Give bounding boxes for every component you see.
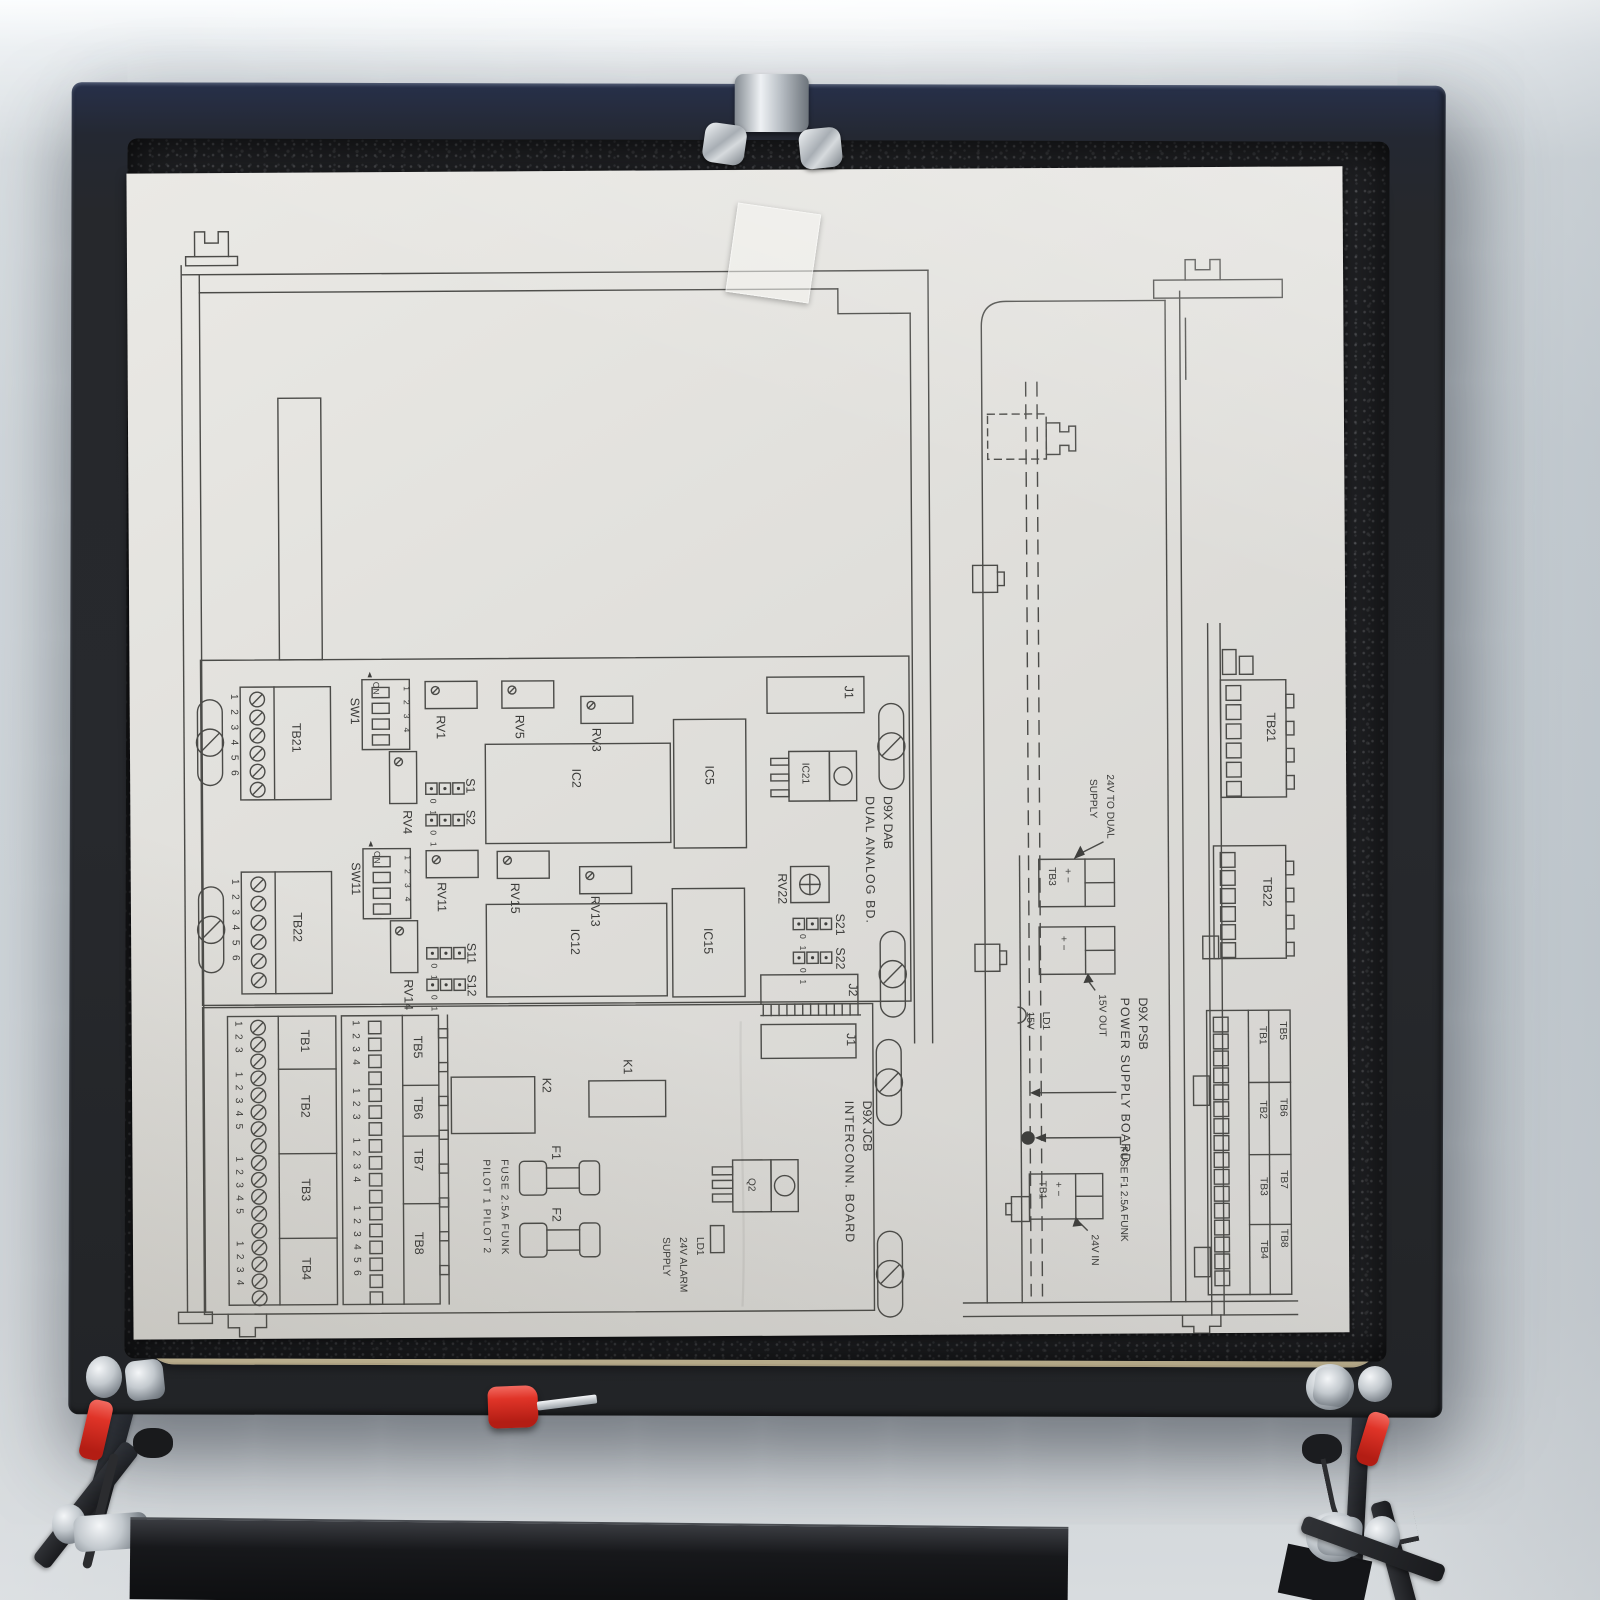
q2-label: Q2 — [745, 1178, 756, 1192]
ic21-package — [771, 751, 857, 801]
ic21-label: IC21 — [799, 763, 810, 785]
tb21-label: TB21 — [289, 723, 303, 753]
tb21-pin-numbers: 1 2 3 4 5 6 — [228, 694, 240, 779]
tb3-pin-numbers: 1 2 3 4 5 — [233, 1156, 244, 1216]
tb1-clip — [1006, 1197, 1030, 1222]
tb7-pin-numbers: 1 2 3 4 — [350, 1138, 361, 1185]
sw11-on-label: ON — [372, 851, 382, 864]
note-24v-dual-line1: 24V TO DUAL — [1104, 774, 1115, 839]
ld1-note-line2: 24V ALARM — [677, 1237, 688, 1292]
tb1-polarity: + − — [1052, 1182, 1063, 1197]
mounting-foot-left — [228, 1314, 266, 1337]
fuse-f2 — [520, 1223, 600, 1257]
rv5-label: RV5 — [513, 715, 527, 739]
tb3-psb-label: TB3 — [1046, 867, 1057, 886]
rv14-label: RV14 — [401, 979, 415, 1010]
tb22-pin-numbers: 1 2 3 4 5 6 — [229, 879, 241, 964]
note-24v-dual-line2: SUPPLY — [1087, 779, 1098, 819]
tb3-block: + − TB3 — [1039, 859, 1115, 907]
pilot-note: PILOT 1 PILOT 2 — [480, 1159, 492, 1254]
rv1-label: RV1 — [434, 715, 448, 739]
hinge-washer-left — [86, 1356, 122, 1398]
psb-col-tb1: TB1 — [1257, 1026, 1268, 1045]
psb-title-line2: POWER SUPPLY BOARD — [1118, 998, 1133, 1164]
s22-states: 0 1 — [798, 968, 808, 987]
enclosure-door: 1 2 3 4 5 6 TB21 ON 1 2 3 4 SW1 RV1 RV5 — [68, 82, 1445, 1418]
tb4-label: TB4 — [299, 1257, 313, 1280]
hinge-nut-right — [1312, 1366, 1353, 1409]
photo-scene: 1 2 3 4 5 6 TB21 ON 1 2 3 4 SW1 RV1 RV5 — [0, 0, 1600, 1600]
box-bottom-edge — [130, 1517, 1069, 1600]
dab-title-line1: D9X DAB — [881, 796, 895, 849]
tb2-label: TB2 — [298, 1095, 312, 1118]
j1-dab-label: J1 — [842, 686, 856, 699]
tb3-polarity: + − — [1062, 868, 1073, 883]
rv22-label: RV22 — [775, 873, 789, 904]
ld1-note-line3: SUPPLY — [660, 1237, 671, 1277]
tb1-label: TB1 — [298, 1030, 312, 1053]
psb-tb22-label: TB22 — [1260, 877, 1274, 907]
terminal-block-tb22: 1 2 3 4 5 6 TB22 — [229, 872, 332, 994]
jcb-title-line2: INTERCONN. BOARD — [842, 1101, 857, 1244]
psb-15v-label: 15V — [1024, 1012, 1035, 1030]
k2-label: K2 — [540, 1078, 554, 1093]
s11-label: S11 — [464, 943, 478, 964]
led-indicator — [1021, 1131, 1035, 1145]
bracket-low — [975, 944, 1007, 971]
j2-pin-comb — [761, 1004, 860, 1016]
note-15v-out: 15V OUT — [1096, 994, 1107, 1036]
psb-col-tb8: TB8 — [1278, 1229, 1289, 1248]
psb-col-tb7: TB7 — [1278, 1170, 1289, 1189]
latch-bolt-left — [701, 121, 748, 167]
tb1-pin-numbers: 1 2 3 — [232, 1021, 243, 1055]
dual-analog-board: 1 2 3 4 5 6 TB21 ON 1 2 3 4 SW1 RV1 RV5 — [196, 656, 911, 1021]
rv13-label: RV13 — [588, 896, 602, 927]
rv4-label: RV4 — [400, 810, 414, 834]
tb4-pin-numbers: 1 2 3 4 — [234, 1241, 245, 1288]
foam-interior: 1 2 3 4 5 6 TB21 ON 1 2 3 4 SW1 RV1 RV5 — [124, 138, 1389, 1361]
ic12-label: IC12 — [568, 929, 582, 955]
latch-roller — [735, 74, 809, 132]
bracket-mid — [973, 565, 1005, 592]
terminal-block-tb21: 1 2 3 4 5 6 TB21 — [228, 687, 331, 800]
note-24v-in: 24V IN — [1089, 1235, 1100, 1266]
din-clip-top — [1185, 259, 1220, 280]
tb6-pin-numbers: 1 2 3 — [350, 1088, 361, 1122]
rv3-label: RV3 — [589, 728, 603, 752]
s2-label: S2 — [463, 810, 477, 825]
tb3-label: TB3 — [299, 1178, 313, 1201]
psb-tb22-block: TB22 — [1202, 845, 1294, 958]
ld1-led — [710, 1226, 724, 1253]
psb-tb21-label: TB21 — [1264, 712, 1278, 742]
dip-switch-sw11: ON 1 2 3 4 SW11 — [349, 841, 413, 919]
tape-tab — [725, 203, 821, 304]
hinge-nut-left — [124, 1358, 166, 1402]
ic5-label: IC5 — [702, 765, 716, 784]
s12-states: 0 1 — [430, 995, 440, 1014]
square-pad-strip: 1 2 3 4 1 2 3 1 2 3 4 1 2 3 4 5 6 TB5 TB… — [341, 1015, 449, 1304]
tb7-label: TB7 — [411, 1148, 425, 1171]
sw1-on-label: ON — [371, 682, 381, 695]
rubber-bumper-left — [133, 1428, 173, 1458]
ic15-label: IC15 — [701, 928, 715, 954]
wire-ferrule-center — [487, 1385, 538, 1429]
s12-label: S12 — [464, 974, 478, 996]
j1-jcb-label: J1 — [844, 1033, 858, 1046]
tb8-pin-numbers: 1 2 3 4 5 6 — [351, 1205, 362, 1278]
interconnection-board: 1 2 3 1 2 3 4 5 1 2 3 4 5 1 2 3 4 TB1 TB… — [203, 1003, 904, 1337]
tb8-label: TB8 — [412, 1232, 426, 1255]
fuse-f1 — [519, 1161, 599, 1195]
rv22-trimmer — [791, 866, 830, 902]
out-polarity: + − — [1058, 936, 1069, 951]
psb-col-tb3: TB3 — [1258, 1177, 1269, 1196]
psb-ld1-label: LD1 — [1040, 1012, 1051, 1031]
f2-label: F2 — [549, 1207, 563, 1222]
mounting-foot-right — [1182, 1315, 1220, 1333]
s1-label: S1 — [463, 778, 477, 793]
tb22-label: TB22 — [290, 912, 304, 942]
sw1-label: SW1 — [348, 698, 362, 725]
f1-label: F1 — [549, 1145, 563, 1160]
out-block: + − — [1039, 927, 1115, 975]
j2-label: J2 — [846, 983, 860, 996]
psb-col-tb5: TB5 — [1277, 1021, 1288, 1040]
dab-title-line2: DUAL ANALOG BD. — [863, 796, 878, 924]
tb5-label: TB5 — [411, 1036, 425, 1059]
psb-tb21-block: TB21 — [1220, 649, 1294, 797]
psb-col-tb4: TB4 — [1258, 1240, 1269, 1259]
bracket-clip — [1046, 423, 1076, 455]
psb-col-tb6: TB6 — [1277, 1098, 1288, 1117]
tb1-block: + − TB1 — [1029, 1174, 1103, 1220]
psb-col-tb2: TB2 — [1257, 1100, 1268, 1119]
latch-bolt-right — [798, 126, 844, 170]
rv15-label: RV15 — [508, 883, 522, 914]
tb2-pin-numbers: 1 2 3 4 5 — [233, 1072, 244, 1132]
din-rail-bar — [1154, 279, 1283, 298]
ic2-label: IC2 — [569, 769, 583, 788]
fuse-note: FUSE 2.5A FUNK — [498, 1159, 510, 1255]
psb-title-line1: D9X PSB — [1136, 997, 1150, 1049]
tb1-psb-label: TB1 — [1037, 1181, 1048, 1200]
tb6-label: TB6 — [411, 1097, 425, 1120]
sw11-label: SW11 — [349, 862, 363, 895]
paper-crease — [740, 1021, 744, 1306]
hinge-pivot-right — [1358, 1366, 1392, 1402]
psb-connector-block: TB1 TB2 TB3 TB4 TB5 TB6 TB7 TB8 — [1193, 1010, 1292, 1295]
s21-states: 0 1 — [798, 934, 808, 953]
s22-label: S22 — [833, 947, 847, 969]
k1-label: K1 — [621, 1059, 635, 1074]
tb5-pin-numbers: 1 2 3 4 — [350, 1020, 361, 1067]
sw1-positions: 1 2 3 4 — [402, 686, 412, 736]
screw-terminal-strip: 1 2 3 1 2 3 4 5 1 2 3 4 5 1 2 3 4 TB1 TB… — [227, 1016, 337, 1306]
s2-states: 0 1 — [429, 830, 439, 849]
ld1-note-line1: LD1 — [694, 1237, 705, 1256]
s21-label: S21 — [833, 914, 847, 936]
rv11-label: RV11 — [435, 882, 449, 912]
power-supply-board-view: + − TB3 + − 24V TO DUAL SUPPLY 15V OUT — [957, 259, 1297, 1335]
sw11-positions: 1 2 3 4 — [403, 855, 413, 905]
dip-switch-sw1: ON 1 2 3 4 SW1 — [348, 671, 412, 749]
schematic-paper: 1 2 3 4 5 6 TB21 ON 1 2 3 4 SW1 RV1 RV5 — [126, 166, 1349, 1339]
board-layout-drawing: 1 2 3 4 5 6 TB21 ON 1 2 3 4 SW1 RV1 RV5 — [126, 166, 1349, 1339]
jcb-title-line1: D9X JCB — [860, 1101, 874, 1152]
